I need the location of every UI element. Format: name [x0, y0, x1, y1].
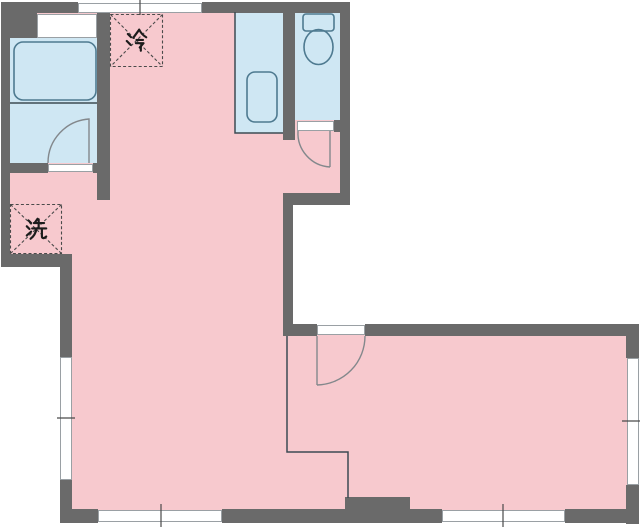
bathtub-icon: [14, 42, 96, 100]
washer-symbol: [11, 205, 62, 254]
bathroom-door-swing: [48, 119, 89, 163]
refrigerator-symbol: [111, 15, 163, 67]
toilet-tank-icon: [303, 14, 334, 31]
kanji-rei-icon: [127, 30, 146, 51]
toilet-door-swing: [298, 131, 330, 167]
sink-icon: [247, 72, 277, 122]
toilet-bowl-icon: [304, 30, 333, 65]
plan-vector-overlay: [0, 0, 640, 527]
floor-plan: 冷 洗: [0, 0, 640, 527]
entrance-door-swing: [317, 336, 365, 385]
